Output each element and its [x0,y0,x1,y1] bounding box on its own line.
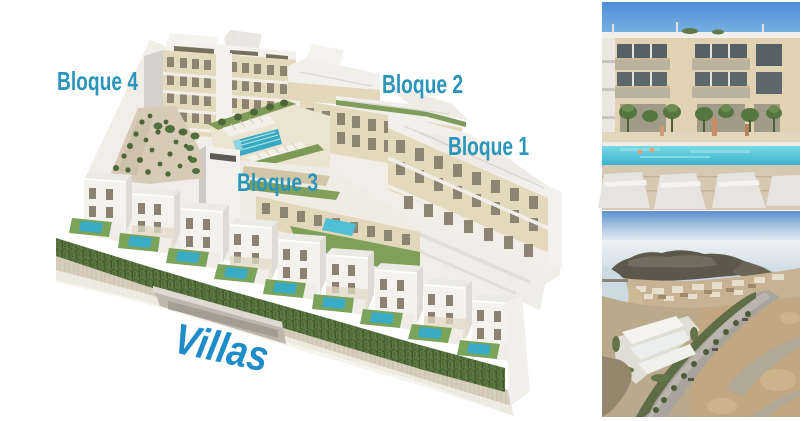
svg-text:Bloque 3: Bloque 3 [237,169,318,197]
svg-text:Bloque 4: Bloque 4 [57,66,138,96]
svg-text:Bloque 2: Bloque 2 [382,69,463,99]
svg-text:Bloque 1: Bloque 1 [448,131,529,161]
